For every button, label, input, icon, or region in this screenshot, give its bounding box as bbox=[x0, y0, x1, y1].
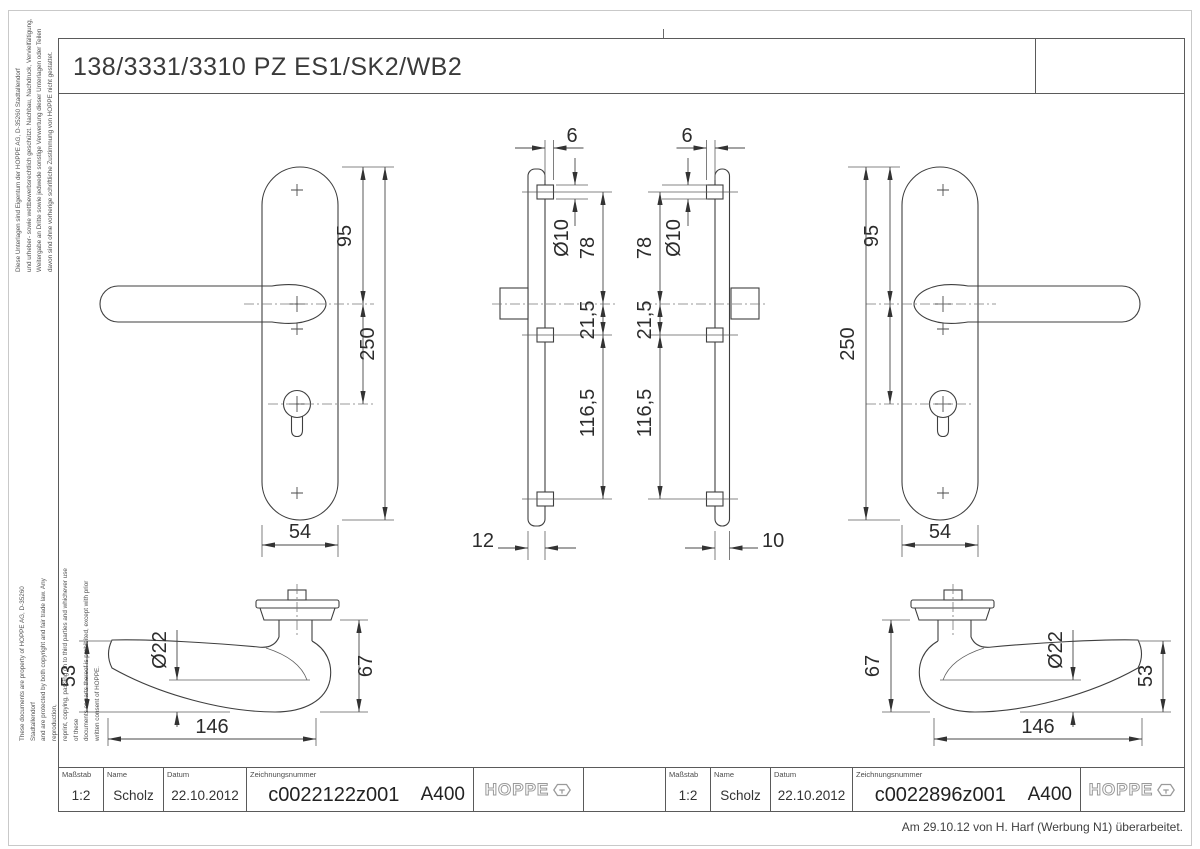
dim-label-6: 6 bbox=[681, 125, 692, 147]
scale-label: Maßstab bbox=[59, 768, 103, 779]
cylinder-keyway bbox=[292, 416, 303, 436]
left-scale-cell: Maßstab 1:2 bbox=[59, 768, 104, 811]
empty-cell bbox=[584, 768, 666, 811]
center-marks bbox=[935, 184, 951, 499]
dim-label-10: 10 bbox=[762, 530, 784, 552]
dim-label-o10: Ø10 bbox=[551, 219, 573, 257]
right-name-cell: Name Scholz bbox=[711, 768, 771, 811]
scale-label: Maßstab bbox=[666, 768, 710, 779]
dim-hole-dia: Ø10 bbox=[551, 158, 575, 257]
left-profile-view: 6 Ø10 78 21,5 116,5 bbox=[472, 125, 618, 560]
hoppe-logo-text: HOPPE bbox=[1089, 780, 1154, 800]
handle-stub bbox=[500, 288, 528, 319]
dim-height: 250 bbox=[357, 167, 385, 520]
dim-label-146: 146 bbox=[1021, 716, 1054, 738]
dim-hole-dia: Ø10 bbox=[663, 158, 688, 257]
backplate-outline bbox=[262, 167, 338, 520]
dim-handle-to-mid: 21,5 bbox=[577, 301, 603, 340]
dim-top-to-handle: 78 bbox=[577, 192, 603, 304]
dim-handle-to-mid: 21,5 bbox=[634, 301, 660, 340]
hoppe-logo-text: HOPPE bbox=[485, 780, 550, 800]
right-logo-cell: HOPPE bbox=[1081, 768, 1184, 811]
drawing-number-value: c0022122z001 bbox=[247, 784, 421, 807]
hoppe-logo-icon bbox=[552, 782, 572, 798]
date-label: Datum bbox=[164, 768, 246, 779]
date-value: 22.10.2012 bbox=[771, 779, 852, 811]
dim-top-to-handle: 95 bbox=[861, 167, 890, 304]
dim-label-53: 53 bbox=[58, 665, 80, 687]
drawing-canvas: 95 250 54 95 bbox=[0, 0, 1200, 849]
dim-width: 54 bbox=[902, 521, 978, 557]
dim-end-height: 53 bbox=[58, 641, 230, 712]
name-value: Scholz bbox=[104, 779, 163, 811]
dim-length: 146 bbox=[108, 716, 316, 746]
right-backplate-view: 95 250 54 bbox=[837, 167, 1140, 557]
dim-label-21-5: 21,5 bbox=[634, 301, 656, 340]
centerlines bbox=[244, 304, 374, 404]
handle-stub bbox=[731, 288, 759, 319]
center-marks bbox=[289, 184, 305, 499]
dim-lug-offset: 6 bbox=[515, 125, 584, 180]
revision-code: A400 bbox=[1028, 784, 1080, 806]
dim-height: 250 bbox=[837, 167, 866, 520]
bend-silhouette bbox=[266, 648, 307, 680]
right-scale-cell: Maßstab 1:2 bbox=[666, 768, 711, 811]
right-drawing-number-cell: Zeichnungsnummer c0022896z001 A400 bbox=[853, 768, 1081, 811]
dim-lug-offset: 6 bbox=[677, 125, 746, 180]
dim-label-78: 78 bbox=[577, 237, 599, 259]
drawing-number-label: Zeichnungsnummer bbox=[247, 768, 473, 779]
dim-grip-dia: Ø22 bbox=[940, 630, 1081, 727]
dim-end-height: 53 bbox=[1020, 641, 1171, 712]
date-value: 22.10.2012 bbox=[164, 779, 246, 811]
name-label: Name bbox=[104, 768, 163, 779]
left-lever-view: 53 Ø22 67 146 bbox=[58, 584, 377, 746]
dim-label-116-5: 116,5 bbox=[577, 389, 599, 438]
dim-label-67: 67 bbox=[862, 655, 884, 677]
dim-label-o10: Ø10 bbox=[663, 219, 685, 257]
left-name-cell: Name Scholz bbox=[104, 768, 164, 811]
dim-label-250: 250 bbox=[357, 327, 379, 360]
dim-hub-height: 67 bbox=[320, 620, 377, 712]
cylinder-keyway bbox=[938, 416, 949, 436]
dim-mid-to-bottom: 116,5 bbox=[634, 335, 660, 499]
dim-label-o22: Ø22 bbox=[1045, 631, 1067, 669]
left-drawing-number-cell: Zeichnungsnummer c0022122z001 A400 bbox=[247, 768, 474, 811]
dim-label-12: 12 bbox=[472, 530, 494, 552]
dim-mid-to-bottom: 116,5 bbox=[577, 335, 603, 499]
plate-profile bbox=[528, 169, 545, 526]
left-backplate-view: 95 250 54 bbox=[100, 167, 394, 557]
hoppe-logo-icon bbox=[1156, 782, 1176, 798]
dim-label-95: 95 bbox=[861, 225, 883, 247]
left-date-cell: Datum 22.10.2012 bbox=[164, 768, 247, 811]
drawing-number-label: Zeichnungsnummer bbox=[853, 768, 1080, 779]
revision-code: A400 bbox=[421, 784, 473, 806]
dim-width: 54 bbox=[262, 521, 338, 557]
name-value: Scholz bbox=[711, 779, 770, 811]
dim-label-6: 6 bbox=[566, 125, 577, 147]
right-profile-view: 6 Ø10 78 21,5 116,5 bbox=[634, 125, 784, 560]
dim-label-67: 67 bbox=[355, 655, 377, 677]
scale-value: 1:2 bbox=[666, 779, 710, 811]
grip-outline bbox=[109, 637, 331, 712]
dim-label-54: 54 bbox=[929, 521, 951, 543]
plate-profile bbox=[715, 169, 730, 526]
dim-label-116-5: 116,5 bbox=[634, 389, 656, 438]
dim-label-o22: Ø22 bbox=[149, 631, 171, 669]
dim-label-146: 146 bbox=[195, 716, 228, 738]
scale-value: 1:2 bbox=[59, 779, 103, 811]
right-lever-view: 67 Ø22 53 146 bbox=[862, 584, 1171, 746]
drawing-number-value: c0022896z001 bbox=[853, 784, 1028, 807]
neck-sides bbox=[279, 620, 312, 641]
revision-footnote: Am 29.10.12 von H. Harf (Werbung N1) übe… bbox=[902, 820, 1183, 834]
grip-outline bbox=[919, 637, 1141, 712]
rose-top bbox=[911, 600, 994, 608]
left-logo-cell: HOPPE bbox=[474, 768, 584, 811]
drawing-sheet: Diese Unterlagen sind Eigentum der HOPPE… bbox=[0, 0, 1200, 849]
dim-label-78: 78 bbox=[634, 237, 656, 259]
dim-length: 146 bbox=[934, 716, 1142, 746]
date-label: Datum bbox=[771, 768, 852, 779]
centerlines bbox=[866, 304, 996, 404]
rose-base bbox=[915, 608, 990, 620]
name-label: Name bbox=[711, 768, 770, 779]
backplate-outline bbox=[902, 167, 978, 520]
dim-label-21-5: 21,5 bbox=[577, 301, 599, 340]
dim-top-to-handle: 78 bbox=[634, 192, 660, 304]
dim-thickness: 10 bbox=[685, 530, 784, 560]
right-date-cell: Datum 22.10.2012 bbox=[771, 768, 853, 811]
dim-thickness: 12 bbox=[472, 530, 576, 560]
bend-silhouette bbox=[943, 648, 984, 680]
dim-label-53: 53 bbox=[1135, 665, 1157, 687]
dim-label-95: 95 bbox=[334, 225, 356, 247]
rose-base bbox=[260, 608, 335, 620]
title-block-row: Maßstab 1:2 Name Scholz Datum 22.10.2012… bbox=[58, 767, 1185, 812]
neck-sides bbox=[938, 620, 971, 641]
dim-label-54: 54 bbox=[289, 521, 311, 543]
dim-label-250: 250 bbox=[837, 327, 859, 360]
rose-top bbox=[256, 600, 339, 608]
